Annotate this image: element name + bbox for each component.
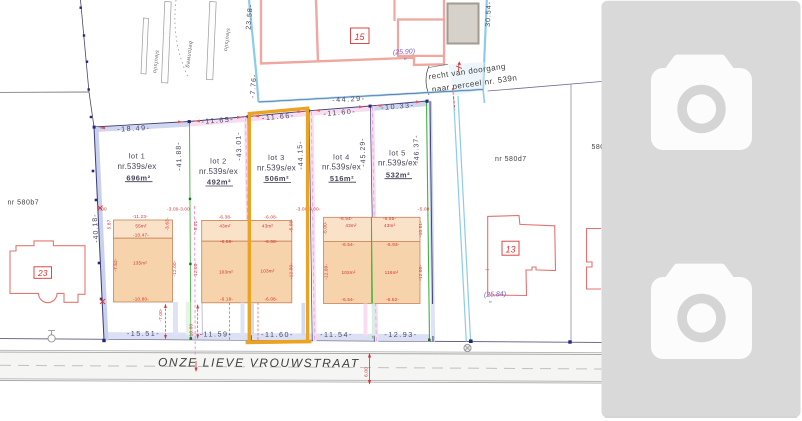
svg-text:55m²: 55m² [135, 224, 147, 229]
svg-text:103m²: 103m² [260, 269, 274, 274]
svg-text:-6.18-: -6.18- [220, 297, 233, 302]
svg-text:-6.08-: -6.08- [264, 297, 277, 302]
svg-text:532m²: 532m² [386, 170, 410, 179]
svg-text:-6.54-: -6.54- [339, 216, 352, 221]
svg-text:103m²: 103m² [219, 270, 233, 275]
svg-text:-12.00-: -12.00- [324, 264, 329, 280]
svg-text:-44.29-: -44.29- [332, 94, 366, 105]
svg-text:nr 580d7: nr 580d7 [495, 156, 527, 163]
svg-text:-6.38-: -6.38- [219, 215, 232, 220]
svg-text:tv: tv [404, 57, 407, 61]
svg-text:-6.08-: -6.08- [264, 215, 277, 220]
svg-text:135m²: 135m² [133, 261, 147, 266]
svg-text:-10.47-: -10.47- [133, 233, 149, 238]
svg-text:lot 3: lot 3 [268, 153, 285, 162]
svg-text:-3.00-3.00: -3.00-3.00 [167, 207, 190, 212]
svg-text:-11.59-: -11.59- [200, 330, 233, 339]
svg-text:(25.90): (25.90) [393, 48, 416, 56]
svg-text:nr.539s/ex: nr.539s/ex [378, 159, 417, 168]
svg-text:-41.88-: -41.88- [175, 141, 183, 170]
svg-text:(25.84): (25.84) [484, 291, 507, 299]
svg-text:nr.539s/ex: nr.539s/ex [199, 167, 238, 176]
svg-text:-6.54-: -6.54- [341, 242, 354, 247]
svg-text:-10.51-: -10.51- [418, 221, 423, 237]
svg-text:-5.00-: -5.00- [322, 221, 327, 234]
svg-text:nr 580b7: nr 580b7 [8, 200, 40, 207]
svg-text:tv: tv [489, 300, 492, 304]
svg-text:506m²: 506m² [265, 174, 289, 183]
svg-text:10.00: 10.00 [189, 324, 194, 337]
svg-text:-5.00-: -5.00- [289, 219, 294, 232]
svg-text:43m²: 43m² [219, 224, 231, 229]
svg-text:-43.01-: -43.01- [235, 131, 243, 160]
svg-text:492m²: 492m² [207, 178, 231, 187]
svg-text:-6.54-: -6.54- [341, 297, 354, 302]
svg-text:23: 23 [37, 268, 48, 278]
svg-text:-12.93-: -12.93- [384, 330, 417, 339]
svg-text:-7.52-: -7.52- [113, 258, 118, 271]
svg-text:116m²: 116m² [385, 270, 399, 275]
svg-text:-6.55-: -6.55- [383, 216, 396, 221]
svg-text:-5.01-: -5.01- [193, 219, 198, 232]
svg-text:-5.00: -5.00 [418, 206, 430, 211]
svg-text:-12.00-: -12.00- [418, 265, 423, 281]
svg-text:6.00: 6.00 [364, 367, 369, 377]
svg-text:-10.80-: -10.80- [133, 296, 149, 301]
svg-text:13: 13 [506, 245, 516, 255]
svg-text:-6.58-: -6.58- [264, 239, 277, 244]
svg-text:nr.539s/ex: nr.539s/ex [257, 163, 296, 172]
svg-text:-11.54-: -11.54- [320, 330, 353, 339]
svg-text:lot 1: lot 1 [129, 151, 146, 160]
svg-text:lot 5: lot 5 [389, 149, 406, 158]
svg-text:43m²: 43m² [262, 224, 274, 229]
svg-text:-12.00-: -12.00- [289, 263, 294, 279]
svg-text:lot 4: lot 4 [333, 152, 350, 161]
svg-text:-3.63-: -3.63- [164, 217, 169, 230]
svg-text:5.87: 5.87 [106, 219, 111, 229]
svg-text:-15.51-: -15.51- [127, 329, 160, 338]
svg-text:nr.539s/ex: nr.539s/ex [322, 162, 361, 171]
svg-text:15: 15 [355, 32, 366, 42]
svg-text:43m²: 43m² [345, 223, 357, 228]
svg-text:-44.15-: -44.15- [297, 140, 305, 169]
svg-text:516m²: 516m² [330, 174, 354, 183]
svg-text:-7.00-: -7.00- [158, 308, 163, 321]
svg-text:nr.539s/ex: nr.539s/ex [118, 162, 157, 171]
svg-text:-11.60-: -11.60- [261, 330, 294, 339]
svg-text:102m²: 102m² [341, 270, 355, 275]
svg-text:lot 2: lot 2 [210, 157, 227, 166]
svg-text:-12.00-: -12.00- [193, 262, 198, 278]
svg-text:-18.49-: -18.49- [117, 123, 151, 134]
svg-text:ONZE LIEVE VROUWSTRAAT: ONZE LIEVE VROUWSTRAAT [158, 355, 360, 370]
svg-text:1.00: 1.00 [97, 207, 107, 212]
svg-text:-11.23-: -11.23- [132, 214, 148, 219]
svg-text:696m²: 696m² [126, 173, 150, 182]
svg-text:-6.93-: -6.93- [386, 242, 399, 247]
svg-text:-12.00-: -12.00- [172, 260, 177, 276]
svg-text:-6.52-: -6.52- [386, 297, 399, 302]
svg-text:43m²: 43m² [384, 223, 396, 228]
svg-text:-6.58-: -6.58- [220, 239, 233, 244]
svg-text:30.54-: 30.54- [485, 1, 493, 27]
